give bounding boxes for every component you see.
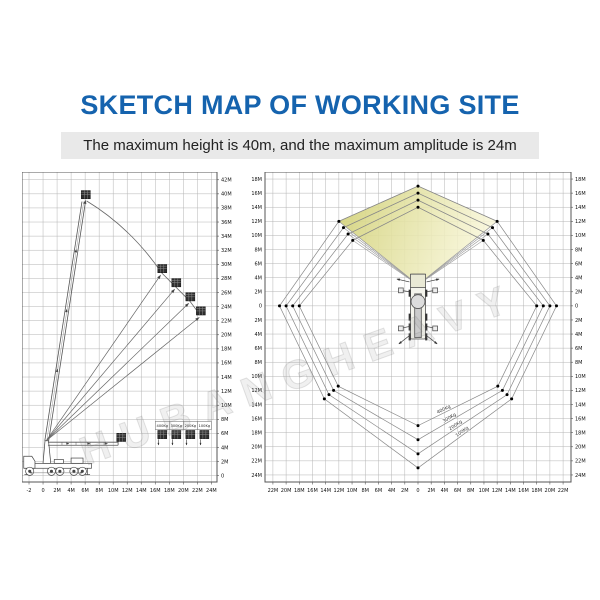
x-tick-label: 4M <box>388 488 396 494</box>
vertex-dot <box>327 393 330 396</box>
arrowhead <box>186 443 188 446</box>
y-tick-label: 16M <box>221 361 232 367</box>
outrigger-pad <box>433 326 438 331</box>
y-tick-label-left: 8M <box>255 247 263 253</box>
charts-row: -202M4M6M8M10M12M14M16M18M20M22M24M42M40… <box>22 172 600 504</box>
arrowhead <box>65 309 67 312</box>
y-tick-label-left: 2M <box>255 318 263 324</box>
y-tick-label-left: 2M <box>255 290 263 296</box>
vertex-dot <box>417 452 420 455</box>
x-tick-label: 14M <box>320 488 331 494</box>
wheel <box>409 323 411 330</box>
x-tick-label: 18M <box>164 488 175 494</box>
y-tick-label: 32M <box>221 248 232 254</box>
y-tick-label: 24M <box>221 304 232 310</box>
platform-bucket-icon <box>196 307 205 315</box>
cab <box>24 456 35 468</box>
y-tick-label-left: 16M <box>251 191 262 197</box>
x-tick-label: 24M <box>206 488 217 494</box>
x-tick-label: 0 <box>416 488 419 494</box>
x-tick-label: 6M <box>81 488 89 494</box>
y-tick-label-left: 6M <box>255 261 263 267</box>
y-tick-label-left: 12M <box>251 219 262 225</box>
vertex-dot <box>486 233 489 236</box>
y-tick-label: 4M <box>221 445 229 451</box>
x-tick-label: 14M <box>505 488 516 494</box>
page-title: SKETCH MAP OF WORKING SITE <box>0 90 600 121</box>
y-tick-label: 22M <box>221 318 232 324</box>
y-tick-label: 6M <box>221 431 229 437</box>
vertex-dot <box>506 393 509 396</box>
plan-view-chart: 22M20M18M16M14M12M10M8M6M4M2M02M4M6M8M10… <box>249 172 600 504</box>
y-tick-label-right: 24M <box>575 473 586 479</box>
y-tick-label-left: 12M <box>251 388 262 394</box>
x-tick-label: 10M <box>108 488 119 494</box>
vertex-dot <box>535 304 538 307</box>
vertex-dot <box>351 239 354 242</box>
y-tick-label-right: 12M <box>575 219 586 225</box>
vertex-dot <box>337 385 340 388</box>
vertex-dot <box>417 199 420 202</box>
vertex-dot <box>298 304 301 307</box>
y-tick-label-left: 14M <box>251 205 262 211</box>
y-tick-label-right: 2M <box>575 290 583 296</box>
y-tick-label-right: 4M <box>575 332 583 338</box>
capacity-label: 400Kg <box>157 424 169 428</box>
x-tick-label: 8M <box>467 488 475 494</box>
arrowhead <box>88 443 91 445</box>
y-tick-label-left: 20M <box>251 445 262 451</box>
y-tick-label: 38M <box>221 206 232 212</box>
arrowhead <box>200 443 202 446</box>
x-tick-label: 14M <box>136 488 147 494</box>
x-tick-label: 20M <box>178 488 189 494</box>
x-tick-label: 6M <box>454 488 462 494</box>
vertex-dot <box>332 389 335 392</box>
x-tick-label: 2M <box>53 488 61 494</box>
vertex-dot <box>417 438 420 441</box>
wheel <box>425 290 427 297</box>
vertex-dot <box>491 226 494 229</box>
arrowhead <box>56 369 58 372</box>
ring-capacity-label: 400Kg <box>436 404 452 416</box>
x-tick-label: 22M <box>268 488 279 494</box>
y-tick-label-right: 10M <box>575 374 586 380</box>
vertex-dot <box>548 304 551 307</box>
x-tick-label: 18M <box>531 488 542 494</box>
x-tick-label: 22M <box>558 488 569 494</box>
y-tick-label: 0 <box>221 473 224 479</box>
y-tick-label-left: 18M <box>251 177 262 183</box>
x-tick-label: 12M <box>122 488 133 494</box>
capacity-label: 100Kg <box>199 424 211 428</box>
header: SKETCH MAP OF WORKING SITE The maximum h… <box>0 0 600 159</box>
y-tick-label: 8M <box>221 417 229 423</box>
outrigger-pad <box>398 326 403 331</box>
y-tick-label: 30M <box>221 262 232 268</box>
boom <box>45 202 118 446</box>
y-tick-label-left: 14M <box>251 402 262 408</box>
y-tick-label: 34M <box>221 234 232 240</box>
y-tick-label-left: 8M <box>255 360 263 366</box>
y-tick-label: 26M <box>221 290 232 296</box>
turret <box>411 295 425 309</box>
y-tick-label: 12M <box>221 389 232 395</box>
x-tick-label: 4M <box>67 488 75 494</box>
y-tick-label-right: 18M <box>575 430 586 436</box>
arrowhead <box>436 278 439 281</box>
y-tick-label-left: 18M <box>251 430 262 436</box>
x-tick-label: 12M <box>492 488 503 494</box>
y-tick-label-left: 10M <box>251 233 262 239</box>
vertex-dot <box>417 466 420 469</box>
wheel <box>425 333 427 340</box>
y-tick-label-right: 2M <box>575 318 583 324</box>
platform-bucket-icon <box>200 430 209 438</box>
y-tick-label-right: 10M <box>575 233 586 239</box>
platform-bucket-icon <box>117 433 126 441</box>
vertex-dot <box>417 424 420 427</box>
truck-top-icon <box>398 274 437 340</box>
y-tick-label-right: 20M <box>575 445 586 451</box>
x-tick-label: 2M <box>401 488 409 494</box>
vertex-dot <box>542 304 545 307</box>
y-tick-label-right: 0 <box>575 304 578 310</box>
x-tick-label: 6M <box>375 488 383 494</box>
arrowhead <box>84 200 87 204</box>
page: SKETCH MAP OF WORKING SITE The maximum h… <box>0 0 600 600</box>
vertex-dot <box>496 220 499 223</box>
y-tick-label-right: 18M <box>575 177 586 183</box>
vertex-dot <box>417 185 420 188</box>
y-tick-label-left: 24M <box>251 473 262 479</box>
outrigger-pad <box>433 288 438 293</box>
arrowhead <box>397 278 400 281</box>
vertex-dot <box>342 226 345 229</box>
platform-bucket-icon <box>172 430 181 438</box>
vertex-dot <box>323 397 326 400</box>
x-tick-label: 12M <box>334 488 345 494</box>
y-tick-label-left: 4M <box>255 275 263 281</box>
capacity-label: 300Kg <box>171 424 183 428</box>
x-tick-label: 16M <box>307 488 318 494</box>
x-tick-label: 10M <box>347 488 358 494</box>
x-tick-label: 8M <box>95 488 103 494</box>
vertex-dot <box>278 304 281 307</box>
platform-bucket-icon <box>186 293 195 301</box>
y-tick-label-right: 12M <box>575 388 586 394</box>
cab-top <box>410 274 425 287</box>
y-tick-label: 10M <box>221 403 232 409</box>
wheel <box>425 323 427 330</box>
vertex-dot <box>285 304 288 307</box>
y-tick-label-right: 14M <box>575 205 586 211</box>
y-tick-label: 18M <box>221 347 232 353</box>
vertex-dot <box>501 389 504 392</box>
subtitle: The maximum height is 40m, and the maxim… <box>61 132 539 159</box>
pedestal <box>43 441 51 464</box>
x-tick-label: 2M <box>427 488 435 494</box>
x-tick-label: 4M <box>441 488 449 494</box>
platform-bucket-icon <box>81 191 90 199</box>
y-tick-label-right: 22M <box>575 459 586 465</box>
platform-bucket-icon <box>158 430 167 438</box>
y-tick-label-left: 0 <box>259 304 262 310</box>
vertex-dot <box>510 397 513 400</box>
y-tick-label-right: 16M <box>575 416 586 422</box>
x-tick-label: 10M <box>479 488 490 494</box>
y-tick-label-left: 4M <box>255 332 263 338</box>
vertex-dot <box>291 304 294 307</box>
side-view-chart: -202M4M6M8M10M12M14M16M18M20M22M24M42M40… <box>22 172 243 504</box>
x-tick-label: 20M <box>545 488 556 494</box>
vertex-dot <box>347 233 350 236</box>
wheel <box>409 314 411 321</box>
arrowhead <box>75 249 77 252</box>
y-tick-label-right: 6M <box>575 261 583 267</box>
vertex-dot <box>417 206 420 209</box>
x-tick-label: 18M <box>294 488 305 494</box>
vertex-dot <box>417 192 420 195</box>
x-tick-label: 16M <box>150 488 161 494</box>
y-tick-label-right: 6M <box>575 346 583 352</box>
capacity-label: 200Kg <box>185 424 197 428</box>
x-tick-label: 8M <box>361 488 369 494</box>
y-tick-label-right: 16M <box>575 191 586 197</box>
y-tick-label-left: 6M <box>255 346 263 352</box>
platform-bucket-icon <box>158 265 167 273</box>
y-tick-label: 28M <box>221 276 232 282</box>
truck-side-icon <box>24 441 92 476</box>
y-tick-label: 42M <box>221 178 232 184</box>
y-tick-label-right: 14M <box>575 402 586 408</box>
y-tick-label: 14M <box>221 375 232 381</box>
y-tick-label: 20M <box>221 333 232 339</box>
vertex-dot <box>496 385 499 388</box>
y-tick-label-right: 8M <box>575 247 583 253</box>
y-tick-label: 40M <box>221 192 232 198</box>
wheel <box>425 314 427 321</box>
platform-bucket-icon <box>186 430 195 438</box>
vertex-dot <box>482 239 485 242</box>
arrowhead <box>172 443 174 446</box>
y-tick-label-left: 16M <box>251 416 262 422</box>
x-tick-label: -2 <box>27 488 32 494</box>
x-tick-label: 22M <box>192 488 203 494</box>
platform-bucket-icon <box>172 279 181 287</box>
y-tick-label: 36M <box>221 220 232 226</box>
y-tick-label-left: 22M <box>251 459 262 465</box>
y-tick-label-right: 8M <box>575 360 583 366</box>
y-tick-label: 2M <box>221 459 229 465</box>
wheel <box>409 290 411 297</box>
x-tick-label: 16M <box>518 488 529 494</box>
arrowhead <box>66 443 69 445</box>
x-tick-label: 20M <box>281 488 292 494</box>
y-tick-label-left: 10M <box>251 374 262 380</box>
arrowhead <box>105 443 108 445</box>
vertex-dot <box>555 304 558 307</box>
wheel <box>409 333 411 340</box>
outrigger-pad <box>398 288 403 293</box>
vertex-dot <box>337 220 340 223</box>
arrowhead <box>158 443 160 446</box>
x-tick-label: 0 <box>41 488 44 494</box>
y-tick-label-right: 4M <box>575 275 583 281</box>
